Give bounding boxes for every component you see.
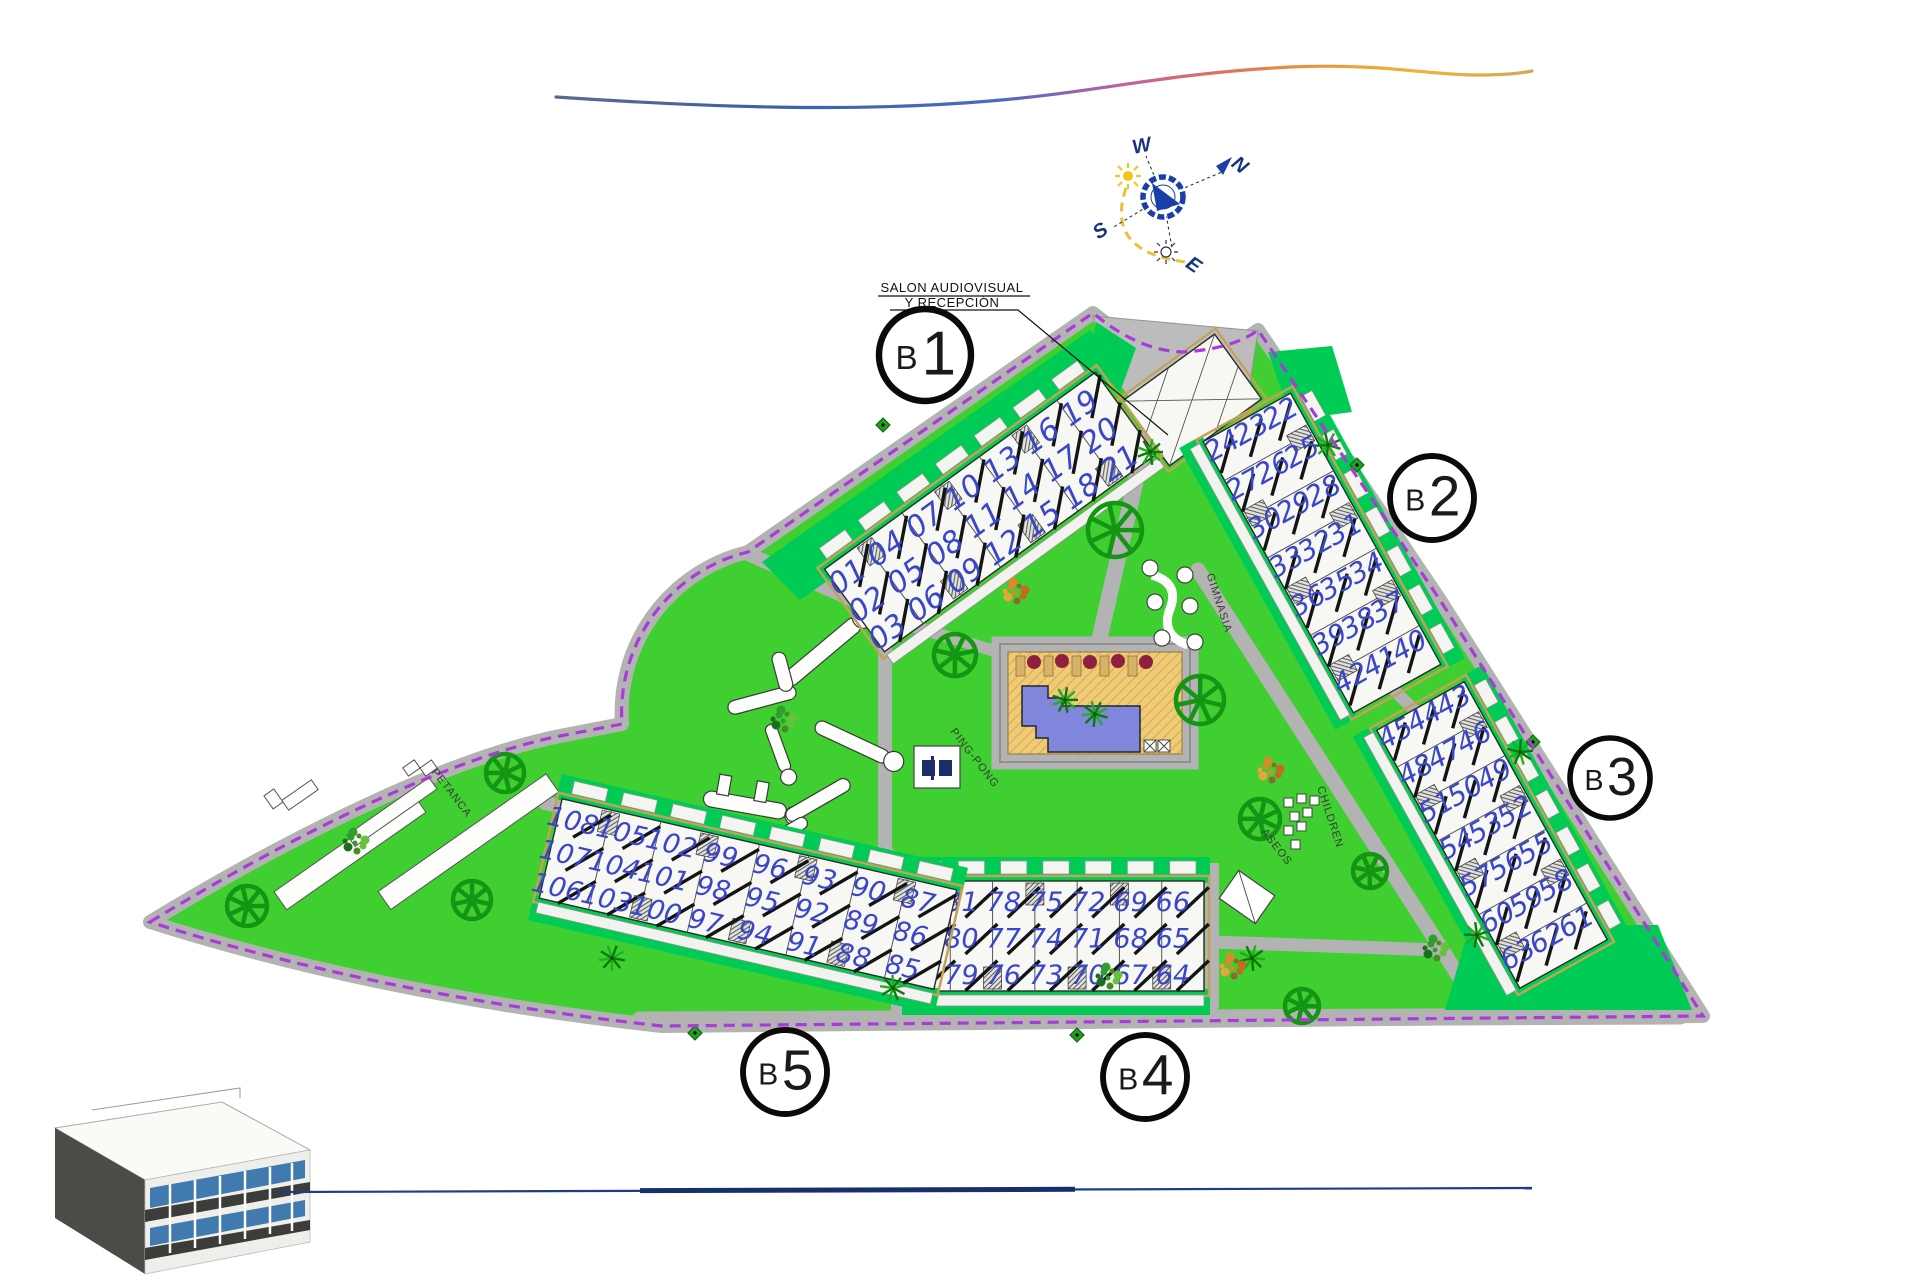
block-badge-b3: B3 — [1570, 738, 1650, 818]
block-badge-b5: B5 — [743, 1030, 827, 1114]
block-badge-b4: B4 — [1103, 1035, 1187, 1119]
block-number: 4 — [1142, 1045, 1174, 1108]
block-number: 5 — [782, 1040, 814, 1103]
block-number: 1 — [922, 319, 957, 388]
block-letter: B — [1405, 485, 1425, 518]
block-letter: B — [1584, 765, 1603, 797]
sun-icon — [1115, 163, 1141, 189]
block-letter: B — [758, 1059, 778, 1092]
unit-number: 72 — [1071, 887, 1105, 918]
block-number: 3 — [1607, 747, 1637, 807]
block-letter: B — [1118, 1064, 1138, 1097]
unit-number: 74 — [1029, 923, 1063, 954]
site-plan-svg: 0102030405060708091011121314151617181920… — [0, 0, 1920, 1280]
unit-number: 65 — [1156, 923, 1190, 954]
unit-number: 77 — [987, 923, 1021, 954]
unit-number: 66 — [1156, 887, 1190, 918]
winter-sun-icon — [1154, 240, 1178, 264]
block-letter: B — [896, 340, 918, 377]
unit-number: 79 — [944, 960, 978, 991]
block-number: 2 — [1429, 466, 1461, 529]
unit-number: 75 — [1029, 887, 1063, 918]
block-badge-b1: B1 — [879, 309, 971, 401]
unit-number: 69 — [1113, 887, 1147, 918]
top-swoosh-line — [556, 66, 1532, 107]
logo-3d-building — [55, 1088, 310, 1274]
access-marker-icon — [1070, 1028, 1084, 1042]
site: 0102030405060708091011121314151617181920… — [150, 313, 1703, 1042]
unit-number: 64 — [1156, 960, 1190, 991]
unit-number: 73 — [1029, 960, 1063, 991]
ping-pong-area — [914, 746, 960, 788]
pool-area — [1000, 644, 1190, 762]
access-marker-icon — [876, 418, 890, 432]
compass-s-label: S — [1089, 218, 1113, 244]
bottom-rule — [278, 1188, 1532, 1192]
compass-w-label: W — [1130, 133, 1155, 159]
umbrella-icon — [1055, 654, 1069, 668]
compass-n-label: N — [1227, 152, 1252, 179]
unit-number: 68 — [1113, 923, 1147, 954]
umbrella-icon — [1111, 654, 1125, 668]
unit-number: 78 — [987, 887, 1021, 918]
compass: W N S E — [1089, 133, 1253, 278]
reception-label-line1: SALON AUDIOVISUAL — [881, 280, 1024, 295]
umbrella-icon — [1027, 655, 1041, 669]
compass-e-label: E — [1182, 252, 1206, 278]
unit-number: 76 — [987, 960, 1021, 991]
site-plan-canvas: 0102030405060708091011121314151617181920… — [0, 0, 1920, 1280]
umbrella-icon — [1139, 655, 1153, 669]
umbrella-icon — [1083, 655, 1097, 669]
unit-number: 71 — [1071, 923, 1105, 954]
block-badge-b2: B2 — [1390, 456, 1474, 540]
